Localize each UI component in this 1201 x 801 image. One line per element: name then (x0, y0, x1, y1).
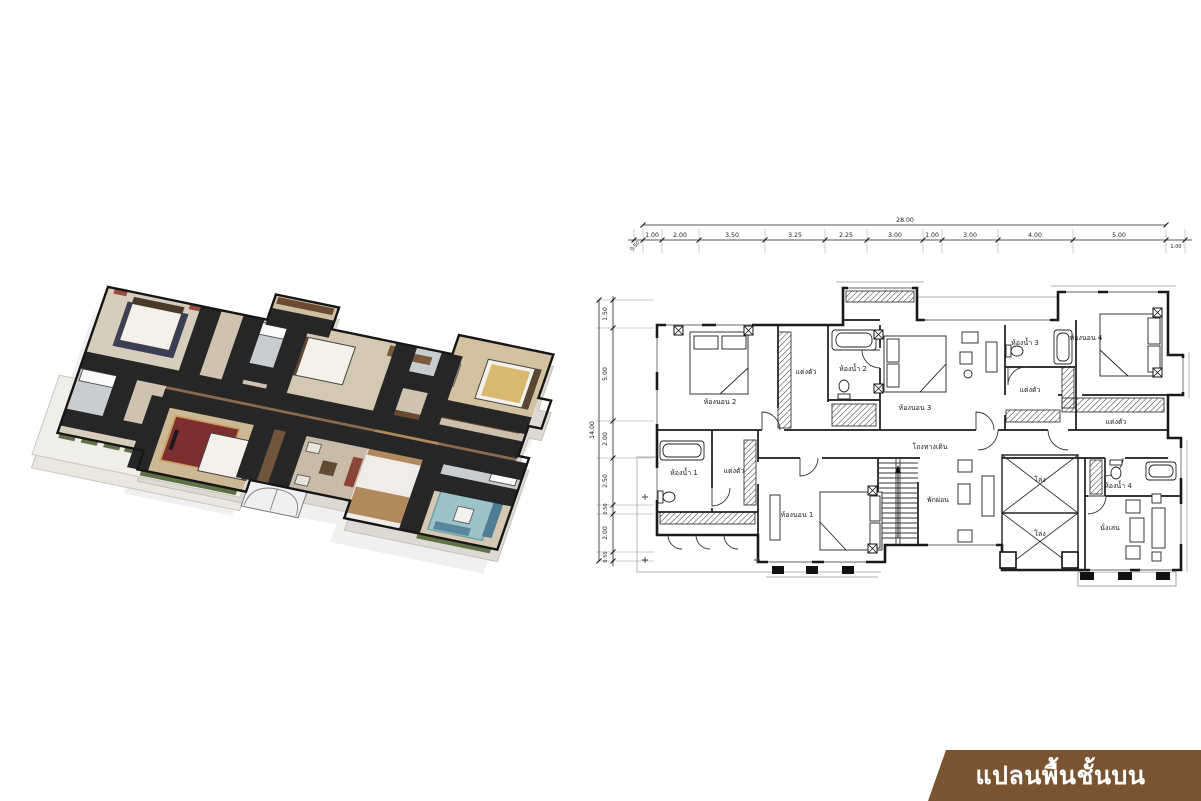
room-label-bedroom-2: ห้องนอน 2 (704, 398, 737, 406)
svg-text:0.50: 0.50 (603, 503, 609, 514)
svg-text:5.00: 5.00 (1112, 232, 1126, 239)
floor-plan-3d-view (20, 240, 610, 595)
furniture (642, 308, 1176, 580)
svg-text:3.00: 3.00 (963, 232, 977, 239)
building-floorplate (29, 258, 567, 558)
room-label-bathroom-2: ห้องน้ำ 2 (839, 362, 867, 373)
void-openings (1000, 455, 1078, 570)
page: { "page": { "background": "#ffffff" }, "… (0, 0, 1201, 801)
svg-text:2.00: 2.00 (673, 232, 687, 239)
room-label-bedroom-4: ห้องนอน 4 (1070, 334, 1103, 342)
svg-text:2.50: 2.50 (602, 474, 609, 488)
room-label-void-upper: โล่ง (1034, 475, 1045, 484)
svg-text:2.00: 2.00 (602, 432, 609, 446)
room-label-dressing-2: แต่งตัว (796, 368, 817, 376)
room-label-lounge: พักผ่อน (927, 496, 949, 504)
dim-total-height: 14.00 (589, 421, 596, 439)
room-label-hallway: โถงทางเดิน (912, 442, 947, 451)
svg-text:3.50: 3.50 (725, 232, 739, 239)
dim-right-offset: 1.00 (1170, 244, 1181, 250)
floor-plan-2d-drawing: 28.00 1.00 2.00 3.50 3.25 2.25 3.00 1.00… (585, 205, 1201, 605)
room-label-bathroom-1: ห้องน้ำ 1 (670, 466, 698, 477)
room-label-bathroom-3: ห้องน้ำ 3 (1011, 336, 1039, 347)
svg-text:5.00: 5.00 (602, 367, 609, 381)
svg-text:4.00: 4.00 (1028, 232, 1042, 239)
staircase (878, 458, 918, 545)
room-label-dressing-3: แต่งตัว (1020, 386, 1041, 394)
svg-text:1.50: 1.50 (602, 307, 609, 321)
room-label-dressing-4: แต่งตัว (1106, 418, 1127, 426)
dim-total-width: 28.00 (896, 217, 914, 224)
room-label-bathroom-4: ห้องน้ำ 4 (1104, 479, 1132, 490)
dim-left-offset: 0.50 (629, 240, 641, 252)
svg-text:0.50: 0.50 (603, 551, 609, 562)
room-label-dressing-1: แต่งตัว (724, 467, 745, 475)
svg-text:2.25: 2.25 (839, 232, 853, 239)
room-label-sitting: นั่งเล่น (1100, 523, 1120, 532)
banner-title: แปลนพื้นชั้นบน (976, 756, 1146, 796)
room-label-bedroom-1: ห้องนอน 1 (781, 511, 814, 519)
svg-text:3.25: 3.25 (788, 232, 802, 239)
svg-text:2.00: 2.00 (602, 526, 609, 540)
room-label-bedroom-3: ห้องนอน 3 (899, 404, 932, 412)
title-banner: แปลนพื้นชั้นบน (920, 750, 1201, 801)
room-label-void-lower: โล่ง (1034, 529, 1045, 538)
svg-text:1.00: 1.00 (925, 232, 939, 239)
svg-text:3.00: 3.00 (888, 232, 902, 239)
dim-seg: 1.00 (645, 232, 659, 239)
